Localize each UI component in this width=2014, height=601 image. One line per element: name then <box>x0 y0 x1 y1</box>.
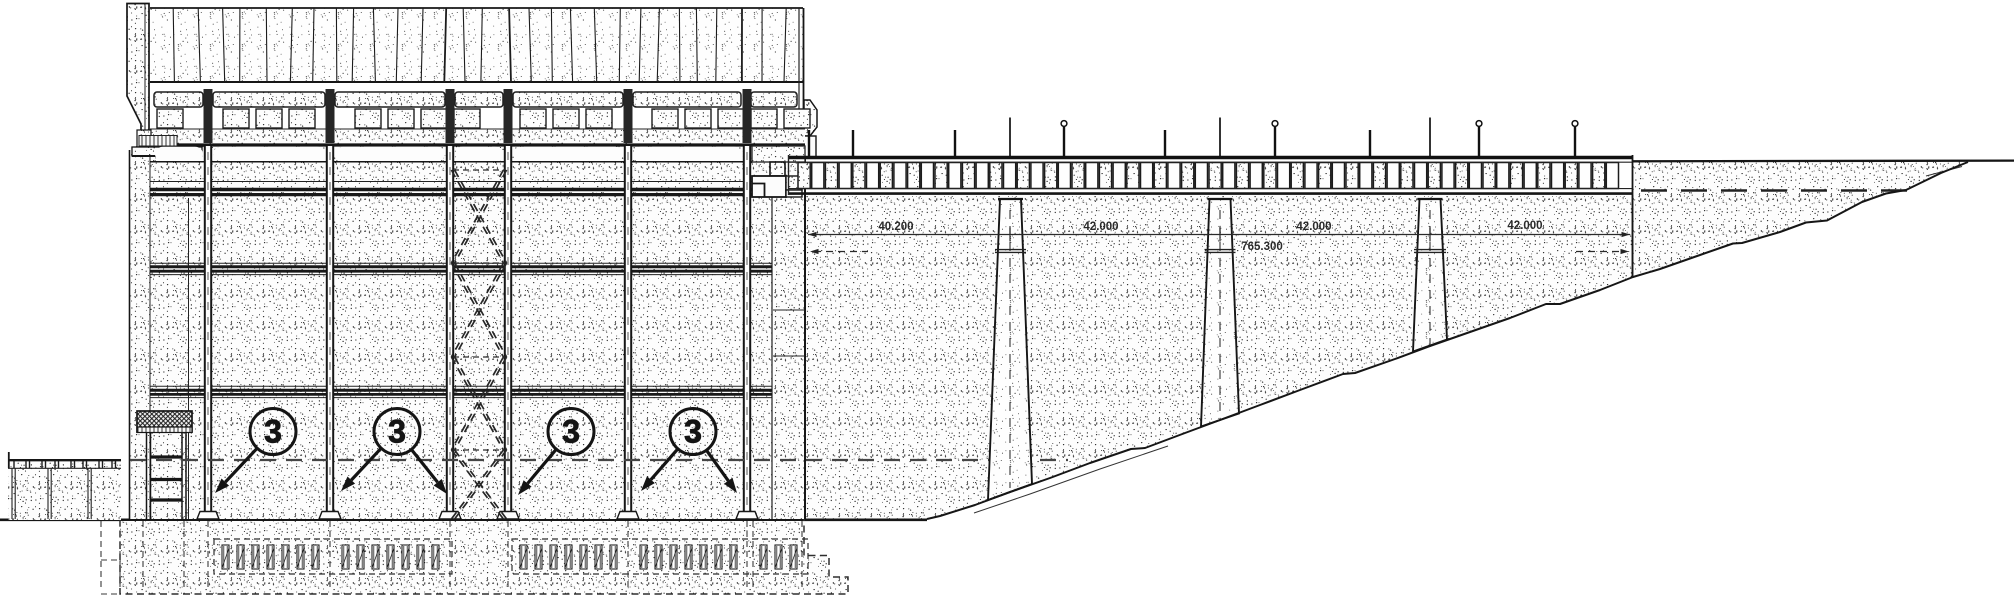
svg-text:3: 3 <box>562 414 580 450</box>
svg-text:42.000: 42.000 <box>1083 221 1118 233</box>
svg-text:765.300: 765.300 <box>1241 241 1283 253</box>
svg-text:3: 3 <box>264 414 282 450</box>
svg-text:3: 3 <box>684 414 702 450</box>
svg-text:42.000: 42.000 <box>1507 220 1542 232</box>
svg-text:42.000: 42.000 <box>1296 221 1331 233</box>
svg-text:40.200: 40.200 <box>878 221 913 233</box>
svg-text:3: 3 <box>388 414 406 450</box>
